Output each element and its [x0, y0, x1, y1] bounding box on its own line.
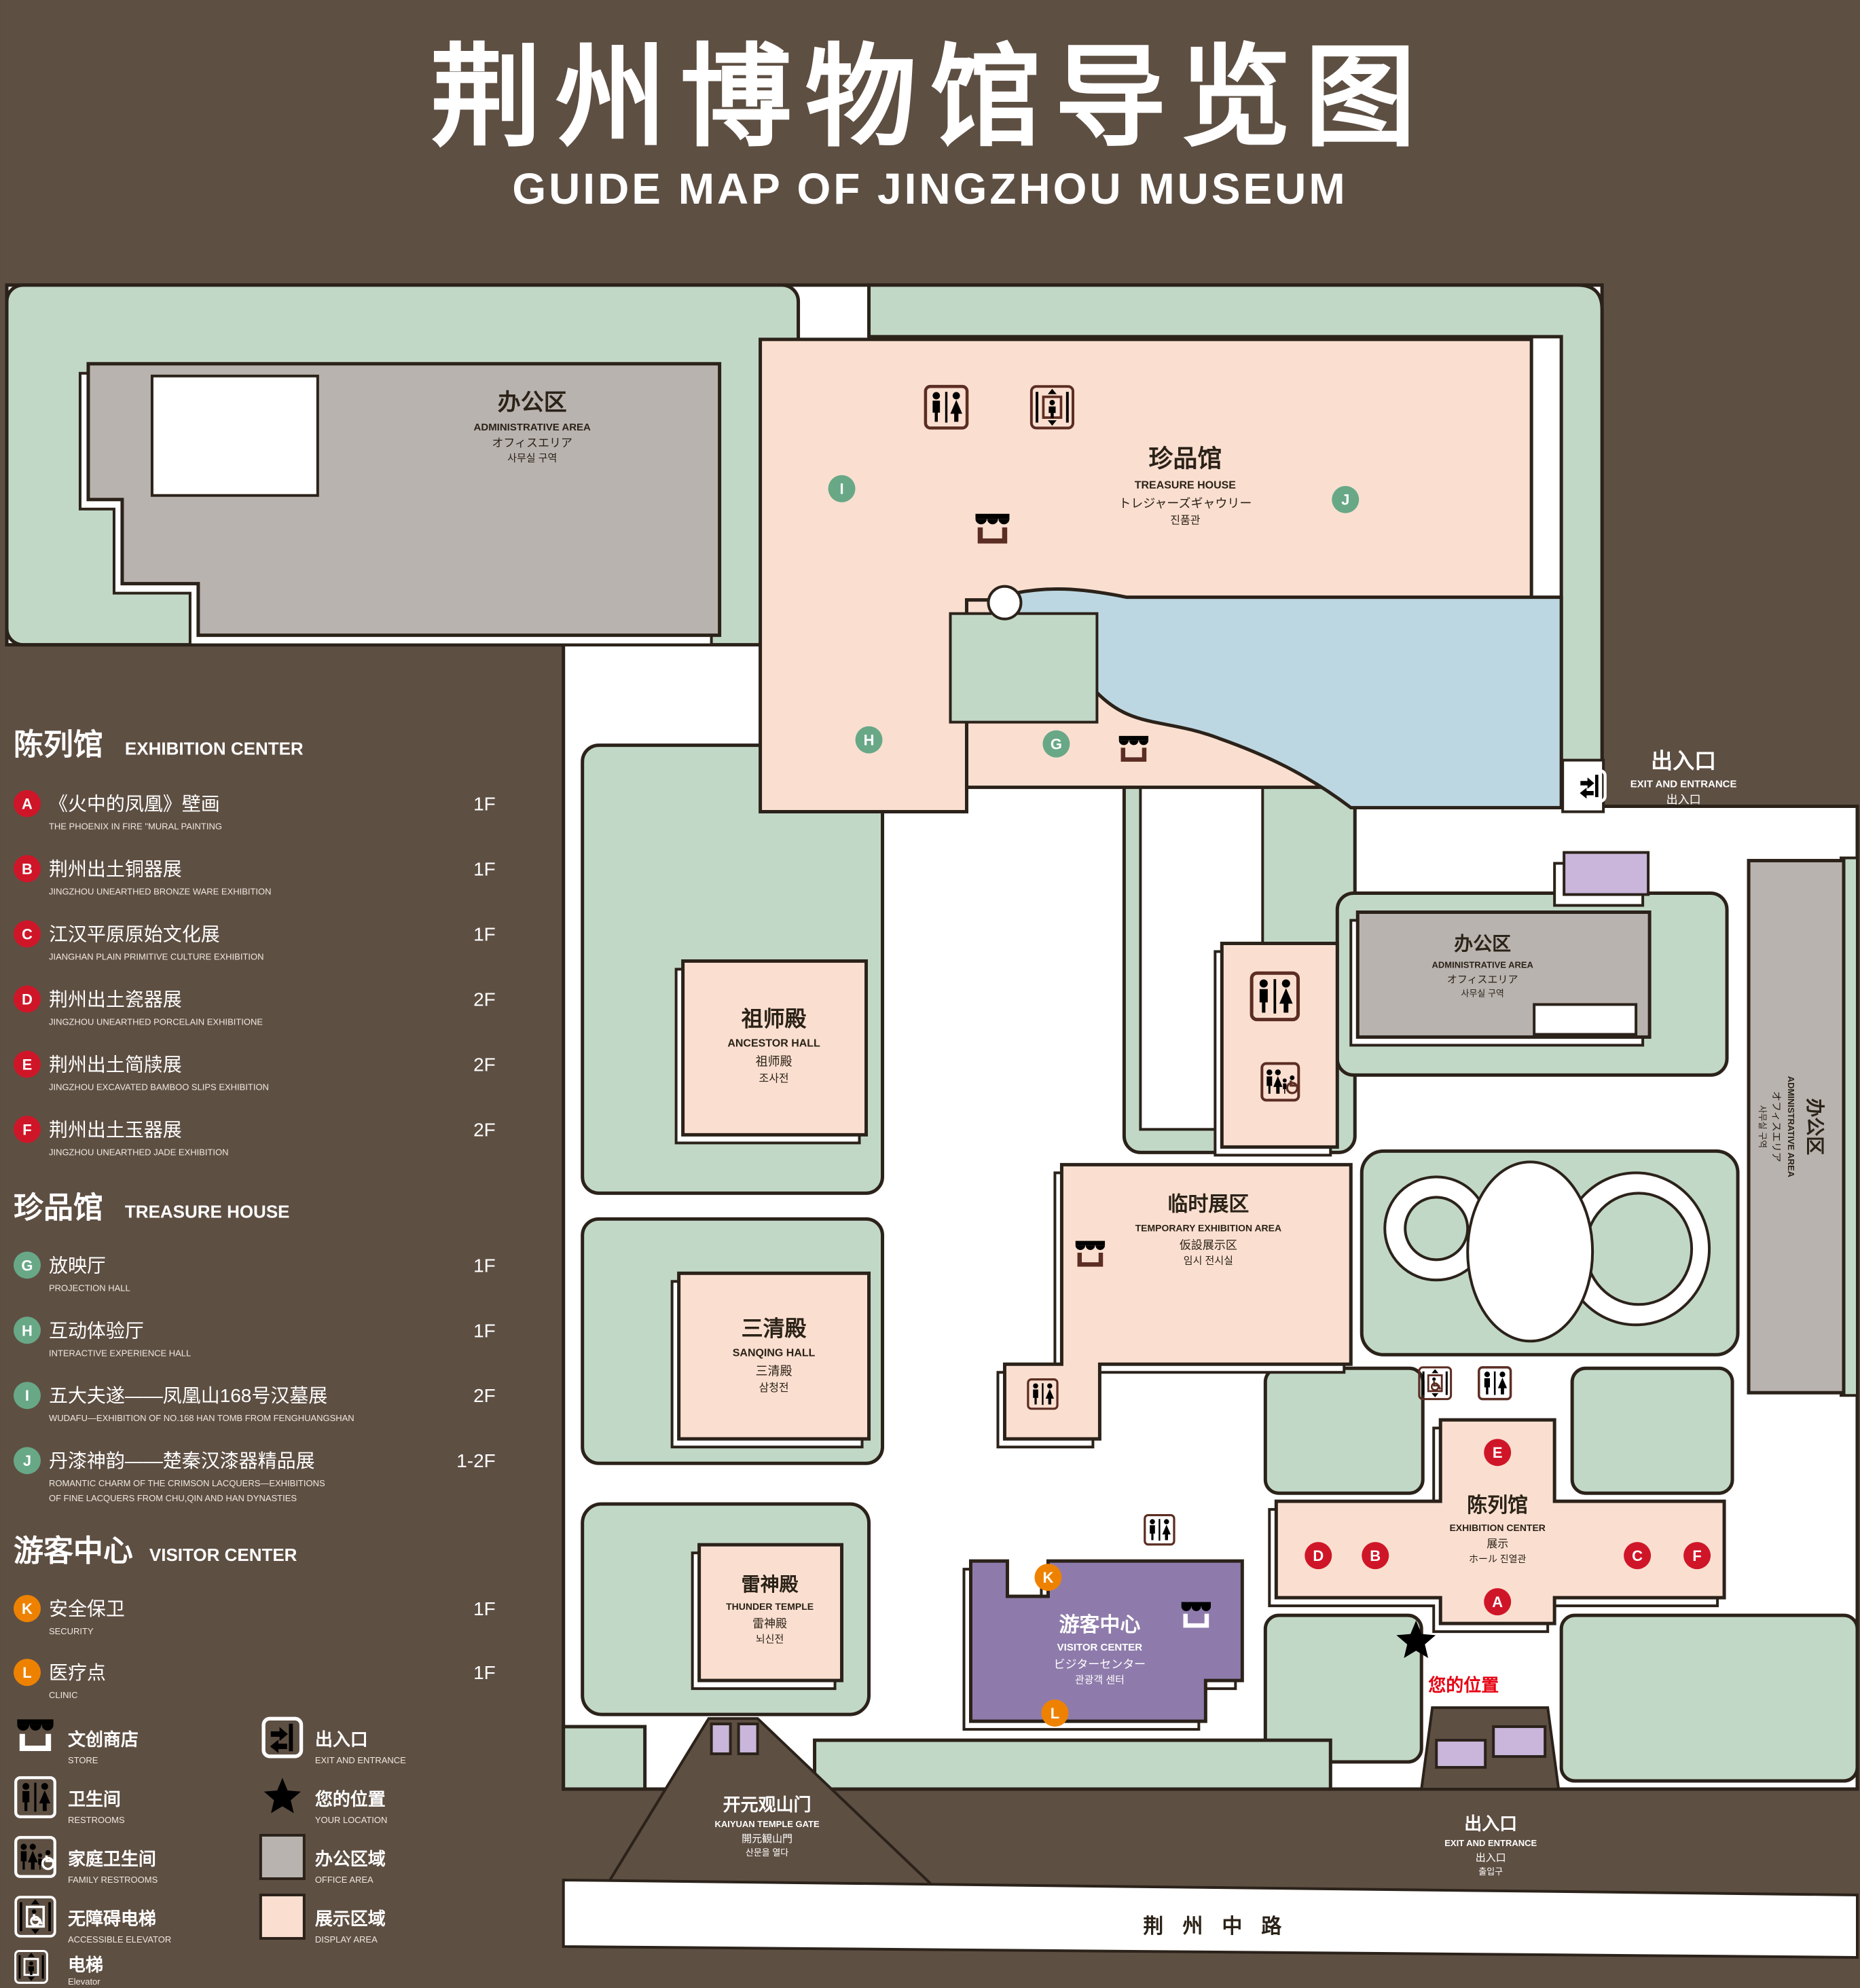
- svg-text:Elevator: Elevator: [68, 1976, 101, 1987]
- admin1-label-ko: 사무실 구역: [507, 453, 557, 464]
- legend-section-exhibition-en: EXHIBITION CENTER: [125, 739, 304, 759]
- svg-text:INTERACTIVE EXPERIENCE HALL: INTERACTIVE EXPERIENCE HALL: [49, 1348, 191, 1358]
- thunder-label-zh: 雷神殿: [742, 1574, 799, 1595]
- svg-text:江汉平原原始文化展: 江汉平原原始文化展: [49, 923, 220, 944]
- svg-text:1F: 1F: [473, 1598, 496, 1619]
- legend-section-exhibition-zh: 陈列馆: [14, 729, 103, 762]
- marker-E: E: [1484, 1439, 1511, 1466]
- svg-text:D: D: [22, 991, 33, 1008]
- svg-text:K: K: [22, 1600, 33, 1617]
- svg-text:ROMANTIC CHARM OF THE CRIMSON: ROMANTIC CHARM OF THE CRIMSON LACQUERS—E…: [49, 1478, 325, 1488]
- admin3-label-ko: 사무실 구역: [1757, 1105, 1768, 1148]
- exit-bottom-ja: 出入口: [1476, 1852, 1506, 1864]
- svg-text:A: A: [1492, 1594, 1503, 1610]
- gate-label-ja: 開元観山門: [742, 1833, 792, 1845]
- road: 荆州中路: [564, 1880, 1857, 1957]
- svg-text:JINGZHOU EXCAVATED BAMBOO SLIP: JINGZHOU EXCAVATED BAMBOO SLIPS EXHIBITI…: [49, 1082, 269, 1092]
- lawn-exhibition-tl: [1265, 1368, 1423, 1493]
- svg-text:G: G: [21, 1257, 33, 1274]
- ancestor-label-en: ANCESTOR HALL: [727, 1037, 820, 1049]
- svg-text:无障碍电梯: 无障碍电梯: [68, 1909, 156, 1929]
- svg-text:F: F: [22, 1121, 31, 1138]
- marker-G: G: [1042, 731, 1070, 758]
- exit-bottom-ko: 출입구: [1478, 1866, 1503, 1877]
- visitor-label-ja: ビジターセンター: [1054, 1658, 1146, 1671]
- exit-top-ja: 出入口: [1666, 794, 1701, 807]
- treasure-label-zh: 珍品馆: [1148, 445, 1222, 473]
- svg-text:A: A: [22, 796, 33, 813]
- exhibition-label-ja: 展示: [1487, 1539, 1508, 1550]
- page-subtitle: GUIDE MAP OF JINGZHOU MUSEUM: [512, 164, 1347, 213]
- temporary-label-ja: 仮設展示区: [1180, 1238, 1237, 1251]
- svg-text:G: G: [1051, 736, 1062, 753]
- svg-text:2F: 2F: [473, 1054, 496, 1075]
- lawn-exhibition-br: [1561, 1615, 1857, 1781]
- visitor-label-ko: 관광객 센터: [1075, 1674, 1125, 1686]
- building-ancestor-hall: 祖师殿 ANCESTOR HALL 祖师殿 조사전: [676, 961, 867, 1143]
- lawn-bottom-2: [815, 1740, 1331, 1789]
- entrance-gate-structure: [1436, 1740, 1485, 1767]
- exit-top-en: EXIT AND ENTRANCE: [1630, 779, 1737, 790]
- legend-section-treasure-en: TREASURE HOUSE: [125, 1201, 290, 1221]
- thunder-label-ja: 雷神殿: [752, 1617, 787, 1630]
- museum-guide-map: 荆州博物馆导览图 GUIDE MAP OF JINGZHOU MUSEUM: [0, 0, 1860, 1987]
- lawn-bottom-1: [564, 1727, 645, 1789]
- legend-section-visitor-en: VISITOR CENTER: [149, 1545, 297, 1565]
- legend-section-visitor-zh: 游客中心: [14, 1534, 133, 1568]
- svg-text:安全保卫: 安全保卫: [49, 1598, 125, 1619]
- treasure-label-ja: トレジャーズギャウリー: [1118, 497, 1252, 511]
- svg-text:ACCESSIBLE ELEVATOR: ACCESSIBLE ELEVATOR: [68, 1934, 171, 1945]
- admin1-label-en: ADMINISTRATIVE AREA: [474, 422, 591, 433]
- svg-text:《火中的凤凰》壁画: 《火中的凤凰》壁画: [49, 794, 220, 815]
- ancestor-label-ja: 祖师殿: [756, 1054, 792, 1068]
- entrance-gate-structure: [1564, 853, 1648, 895]
- svg-text:放映厅: 放映厅: [49, 1255, 106, 1276]
- svg-text:JINGZHOU UNEARTHED BRONZE WARE: JINGZHOU UNEARTHED BRONZE WARE EXHIBITIO…: [49, 887, 272, 897]
- svg-text:I: I: [25, 1387, 29, 1404]
- svg-text:F: F: [1692, 1547, 1701, 1564]
- svg-text:您的位置: 您的位置: [315, 1789, 386, 1809]
- exhibition-label-en: EXHIBITION CENTER: [1449, 1522, 1545, 1533]
- svg-text:2F: 2F: [473, 1119, 496, 1140]
- marker-I: I: [828, 475, 856, 502]
- admin1-label-ja: オフィスエリア: [492, 437, 572, 449]
- svg-text:RESTROOMS: RESTROOMS: [68, 1815, 125, 1825]
- svg-text:DISPLAY AREA: DISPLAY AREA: [315, 1934, 378, 1945]
- svg-text:EXIT AND ENTRANCE: EXIT AND ENTRANCE: [315, 1755, 406, 1765]
- road-label: 荆州中路: [1143, 1915, 1300, 1938]
- admin3-label-en: ADMINISTRATIVE AREA: [1786, 1076, 1796, 1178]
- svg-text:卫生间: 卫生间: [68, 1789, 121, 1809]
- svg-text:E: E: [1493, 1444, 1503, 1461]
- exit-bottom-zh: 出入口: [1464, 1814, 1517, 1834]
- entrance-gate-structure: [1493, 1727, 1545, 1756]
- svg-text:C: C: [22, 925, 33, 942]
- svg-text:THE PHOENIX IN FIRE "MURAL PAI: THE PHOENIX IN FIRE "MURAL PAINTING: [49, 822, 222, 832]
- thunder-label-ko: 뇌신전: [756, 1634, 784, 1645]
- svg-text:出入口: 出入口: [315, 1729, 368, 1750]
- svg-text:荆州出土简牍展: 荆州出土简牍展: [49, 1054, 182, 1075]
- exit-bottom-en: EXIT AND ENTRANCE: [1444, 1838, 1537, 1848]
- svg-text:YOUR LOCATION: YOUR LOCATION: [315, 1815, 388, 1825]
- visitor-label-en: VISITOR CENTER: [1057, 1642, 1143, 1653]
- admin2-label-zh: 办公区: [1454, 933, 1511, 954]
- temporary-label-zh: 临时展区: [1167, 1192, 1249, 1215]
- accessible-elevator-icon: [1419, 1367, 1451, 1399]
- marker-C: C: [1624, 1542, 1651, 1569]
- treasure-label-en: TREASURE HOUSE: [1135, 480, 1237, 492]
- admin2-label-ko: 사무실 구역: [1461, 988, 1504, 998]
- svg-text:PROJECTION HALL: PROJECTION HALL: [49, 1283, 130, 1293]
- svg-text:B: B: [1370, 1547, 1381, 1564]
- exhibition-label-ko: ホール 진열관: [1469, 1553, 1527, 1564]
- svg-text:1F: 1F: [473, 1255, 496, 1276]
- svg-text:医疗点: 医疗点: [49, 1662, 106, 1683]
- svg-text:FAMILY RESTROOMS: FAMILY RESTROOMS: [68, 1875, 158, 1885]
- thunder-label-en: THUNDER TEMPLE: [726, 1601, 814, 1612]
- svg-text:1F: 1F: [473, 859, 496, 880]
- admin3-label-zh: 办公区: [1804, 1098, 1825, 1155]
- svg-text:JIANGHAN PLAIN PRIMITIVE CULTU: JIANGHAN PLAIN PRIMITIVE CULTURE EXHIBIT…: [49, 951, 263, 961]
- page-title: 荆州博物馆导览图: [431, 35, 1429, 160]
- exit-top-ko: 출입구: [1669, 810, 1697, 822]
- marker-D: D: [1305, 1542, 1332, 1569]
- gate-pillar: [712, 1724, 731, 1754]
- courtyard-admin-2: [1534, 1004, 1636, 1034]
- svg-text:J: J: [23, 1452, 31, 1469]
- svg-text:WUDAFU—EXHIBITION OF NO.168 HA: WUDAFU—EXHIBITION OF NO.168 HAN TOMB FRO…: [49, 1413, 354, 1423]
- visitor-label-zh: 游客中心: [1059, 1613, 1140, 1636]
- building-sanqing-hall: 三清殿 SANQING HALL 三清殿 삼청전: [672, 1273, 869, 1447]
- marker-J: J: [1332, 486, 1359, 513]
- marker-F: F: [1683, 1542, 1711, 1569]
- svg-text:C: C: [1632, 1547, 1643, 1564]
- marker-L: L: [1041, 1699, 1068, 1727]
- exhibition-label-zh: 陈列馆: [1467, 1494, 1528, 1517]
- svg-text:1-2F: 1-2F: [456, 1450, 496, 1471]
- pond-bridge: [988, 587, 1021, 619]
- svg-text:H: H: [864, 732, 875, 749]
- building-admin-3: 办公区 ADMINISTRATIVE AREA オフィスエリア 사무실 구역: [1749, 858, 1857, 1396]
- svg-text:OFFICE AREA: OFFICE AREA: [315, 1875, 373, 1885]
- svg-text:CLINIC: CLINIC: [49, 1690, 78, 1700]
- svg-text:丹漆神韵——楚秦汉漆器精品展: 丹漆神韵——楚秦汉漆器精品展: [49, 1450, 315, 1471]
- svg-text:文创商店: 文创商店: [68, 1729, 139, 1750]
- gate-label-en: KAIYUAN TEMPLE GATE: [715, 1819, 820, 1829]
- svg-text:OF FINE LACQUERS FROM CHU,QIN: OF FINE LACQUERS FROM CHU,QIN AND HAN DY…: [49, 1493, 297, 1503]
- svg-text:2F: 2F: [473, 1385, 496, 1406]
- svg-text:STORE: STORE: [68, 1755, 98, 1765]
- exit-top-zh: 出入口: [1651, 749, 1716, 773]
- gate-label-zh: 开元观山门: [723, 1794, 812, 1815]
- legend-section-treasure-zh: 珍品馆: [14, 1191, 103, 1224]
- svg-text:2F: 2F: [473, 989, 496, 1010]
- svg-text:D: D: [1313, 1547, 1324, 1564]
- your-location-label: 您的位置: [1428, 1675, 1499, 1695]
- svg-text:JINGZHOU UNEARTHED JADE EXHIBI: JINGZHOU UNEARTHED JADE EXHIBITION: [49, 1147, 229, 1157]
- svg-text:H: H: [22, 1322, 33, 1339]
- svg-text:荆州出土玉器展: 荆州出土玉器展: [49, 1119, 182, 1140]
- svg-text:L: L: [1051, 1705, 1059, 1722]
- ancestor-label-zh: 祖师殿: [742, 1006, 807, 1031]
- treasure-label-ko: 진품관: [1170, 515, 1200, 527]
- svg-text:展示区域: 展示区域: [315, 1909, 386, 1929]
- courtyard-admin-1: [152, 376, 318, 496]
- sanqing-label-ja: 三清殿: [756, 1364, 792, 1378]
- marker-K: K: [1034, 1564, 1061, 1591]
- marker-B: B: [1362, 1542, 1389, 1569]
- gate-pillar: [739, 1724, 758, 1754]
- svg-text:1F: 1F: [473, 1320, 496, 1341]
- svg-text:荆州出土铜器展: 荆州出土铜器展: [49, 859, 182, 880]
- sanqing-label-en: SANQING HALL: [733, 1347, 816, 1359]
- svg-text:1F: 1F: [473, 794, 496, 815]
- svg-text:五大夫遂——凤凰山168号汉墓展: 五大夫遂——凤凰山168号汉墓展: [49, 1385, 327, 1406]
- svg-text:K: K: [1042, 1569, 1053, 1586]
- svg-text:1F: 1F: [473, 923, 496, 944]
- temporary-label-ko: 임시 전시실: [1184, 1255, 1233, 1266]
- temporary-label-en: TEMPORARY EXHIBITION AREA: [1135, 1222, 1281, 1233]
- building-restrooms-center: [1215, 943, 1337, 1155]
- admin3-label-ja: オフィスエリア: [1770, 1091, 1782, 1162]
- svg-text:电梯: 电梯: [68, 1955, 103, 1975]
- building-thunder-temple: 雷神殿 THUNDER TEMPLE 雷神殿 뇌신전: [693, 1545, 842, 1689]
- elevator-icon: [1032, 386, 1073, 428]
- svg-text:荆州出土瓷器展: 荆州出土瓷器展: [49, 989, 182, 1010]
- admin1-label-zh: 办公区: [498, 390, 567, 416]
- svg-text:1F: 1F: [473, 1662, 496, 1683]
- svg-text:互动体验厅: 互动体验厅: [49, 1320, 144, 1341]
- pond-island: [950, 614, 1097, 722]
- svg-text:家庭卫生间: 家庭卫生间: [68, 1849, 156, 1869]
- svg-text:B: B: [22, 861, 33, 878]
- building-treasure-house: 珍品馆 TREASURE HOUSE トレジャーズギャウリー 진품관 I J H…: [761, 339, 1562, 812]
- gate-label-ko: 산문을 열다: [746, 1847, 788, 1858]
- svg-text:L: L: [22, 1664, 31, 1681]
- svg-text:E: E: [22, 1056, 33, 1073]
- ancestor-label-ko: 조사전: [759, 1072, 789, 1084]
- svg-text:I: I: [839, 481, 843, 498]
- admin2-label-ja: オフィスエリア: [1447, 974, 1518, 985]
- svg-text:J: J: [1341, 492, 1349, 509]
- garden-pond-plaza: [1467, 1162, 1592, 1341]
- svg-text:JINGZHOU UNEARTHED PORCELAIN E: JINGZHOU UNEARTHED PORCELAIN EXHIBITIONE: [49, 1016, 263, 1027]
- lawn-exhibition-tr: [1572, 1368, 1732, 1493]
- sanqing-label-ko: 삼청전: [759, 1382, 789, 1394]
- svg-text:办公区域: 办公区域: [315, 1849, 386, 1869]
- building-admin-2: 办公区 ADMINISTRATIVE AREA オフィスエリア 사무실 구역: [1351, 913, 1649, 1046]
- marker-H: H: [856, 726, 883, 754]
- admin2-label-en: ADMINISTRATIVE AREA: [1432, 959, 1534, 970]
- marker-A: A: [1484, 1588, 1511, 1615]
- sanqing-label-zh: 三清殿: [742, 1316, 807, 1340]
- svg-text:SECURITY: SECURITY: [49, 1626, 94, 1636]
